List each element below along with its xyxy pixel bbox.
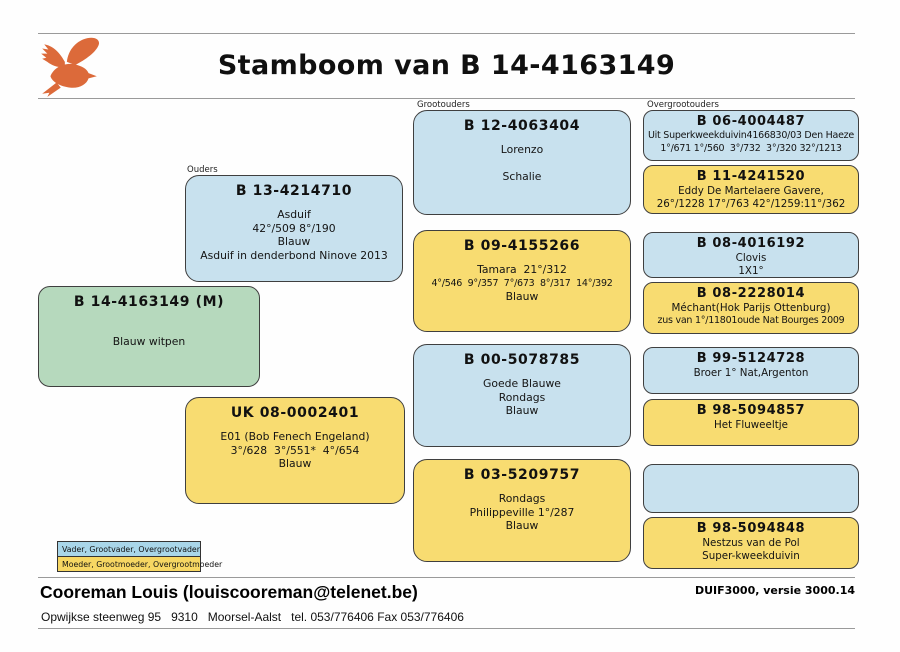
pedigree-box-great-grandmother-1: B 11-4241520 Eddy De Martelaere Gavere, … <box>643 165 859 214</box>
label-ouders: Ouders <box>187 165 218 175</box>
pedigree-line: Blauw <box>414 404 630 418</box>
pedigree-line: 3°/628 3°/551* 4°/654 <box>186 444 404 458</box>
pedigree-box-grandfather-maternal: B 00-5078785 Goede Blauwe Rondags Blauw <box>413 344 631 447</box>
software-version: DUIF3000, versie 3000.14 <box>695 584 855 597</box>
pedigree-box-body: E01 (Bob Fenech Engeland) 3°/628 3°/551*… <box>186 430 404 471</box>
pedigree-line: 1°/671 1°/560 3°/732 3°/320 32°/1213 <box>644 143 858 156</box>
pedigree-box-body <box>644 468 858 480</box>
pedigree-box-great-grandfather-1: B 06-4004487 Uit Superkweekduivin4166830… <box>643 110 859 161</box>
pedigree-line: Uit Superkweekduivin4166830/03 Den Haeze <box>644 130 858 143</box>
pedigree-line: Het Fluweeltje <box>644 419 858 432</box>
pedigree-box-grandmother-maternal: B 03-5209757 Rondags Philippeville 1°/28… <box>413 459 631 562</box>
pedigree-line: Blauw <box>414 519 630 533</box>
owner-address: Opwijkse steenweg 95 9310 Moorsel-Aalst … <box>41 610 464 624</box>
pedigree-box-great-grandmother-3: B 98-5094857 Het Fluweeltje <box>643 399 859 446</box>
pedigree-box-body: Broer 1° Nat,Argenton <box>644 367 858 380</box>
pedigree-line: zus van 1°/11801oude Nat Bourges 2009 <box>644 315 858 328</box>
ring-number: B 14-4163149 (M) <box>39 294 259 310</box>
page-title: Stamboom van B 14-4163149 <box>38 50 855 81</box>
pedigree-line: Blauw <box>186 457 404 471</box>
pedigree-line <box>644 468 858 480</box>
pedigree-box-body: Blauw witpen <box>39 322 259 349</box>
pedigree-box-grandmother-paternal: B 09-4155266 Tamara 21°/312 4°/546 9°/35… <box>413 230 631 332</box>
ring-number: B 08-4016192 <box>644 236 858 251</box>
pedigree-line: 4°/546 9°/357 7°/673 8°/317 14°/392 <box>414 277 630 291</box>
pedigree-line: Clovis <box>644 252 858 265</box>
pedigree-box-body: Lorenzo Schalie <box>414 143 630 183</box>
pedigree-box-great-grandfather-2: B 08-4016192 Clovis 1X1° <box>643 232 859 278</box>
pedigree-line: 26°/1228 17°/763 42°/1259:11°/362 <box>644 198 858 211</box>
pedigree-line: Blauw witpen <box>39 335 259 349</box>
pedigree-box-body: Nestzus van de Pol Super-kweekduivin <box>644 537 858 562</box>
pedigree-line: Lorenzo <box>414 143 630 157</box>
ring-number: B 06-4004487 <box>644 114 858 129</box>
header-bottom-rule <box>38 98 855 99</box>
legend-male-row: Vader, Grootvader, Overgrootvader <box>58 542 200 557</box>
ring-number: B 13-4214710 <box>186 183 402 199</box>
pedigree-line: Schalie <box>414 170 630 184</box>
header-top-rule <box>38 33 855 34</box>
pedigree-line: 1X1° <box>644 265 858 278</box>
pedigree-line: Blauw <box>414 290 630 304</box>
pedigree-page: Stamboom van B 14-4163149 Ouders Grootou… <box>0 0 900 652</box>
label-grootouders: Grootouders <box>417 100 470 110</box>
pedigree-line: Rondags <box>414 492 630 506</box>
pedigree-box-body: Clovis 1X1° <box>644 252 858 277</box>
owner-name: Cooreman Louis (louiscooreman@telenet.be… <box>40 582 418 603</box>
pedigree-line: Broer 1° Nat,Argenton <box>644 367 858 380</box>
ring-number: B 08-2228014 <box>644 286 858 301</box>
pedigree-box-body: Goede Blauwe Rondags Blauw <box>414 377 630 418</box>
ring-number: B 98-5094848 <box>644 521 858 536</box>
pedigree-box-body: Rondags Philippeville 1°/287 Blauw <box>414 492 630 533</box>
pedigree-line: Méchant(Hok Parijs Ottenburg) <box>644 302 858 315</box>
pedigree-line: Super-kweekduivin <box>644 550 858 563</box>
pedigree-line: 42°/509 8°/190 <box>186 222 402 236</box>
label-overgrootouders: Overgrootouders <box>647 100 719 110</box>
pedigree-line: Eddy De Martelaere Gavere, <box>644 185 858 198</box>
pedigree-box-body: Het Fluweeltje <box>644 419 858 432</box>
ring-number: B 99-5124728 <box>644 351 858 366</box>
ring-number: B 11-4241520 <box>644 169 858 184</box>
pedigree-line: Blauw <box>186 235 402 249</box>
pedigree-box-body: Asduif 42°/509 8°/190 Blauw Asduif in de… <box>186 208 402 262</box>
pedigree-box-grandfather-paternal: B 12-4063404 Lorenzo Schalie <box>413 110 631 215</box>
pedigree-box-body: Uit Superkweekduivin4166830/03 Den Haeze… <box>644 130 858 155</box>
pedigree-line: Goede Blauwe <box>414 377 630 391</box>
pedigree-box-father: B 13-4214710 Asduif 42°/509 8°/190 Blauw… <box>185 175 403 282</box>
legend-female-row: Moeder, Grootmoeder, Overgrootmoeder <box>58 557 200 571</box>
pedigree-box-great-grandmother-2: B 08-2228014 Méchant(Hok Parijs Ottenbur… <box>643 282 859 334</box>
pedigree-line: Asduif in denderbond Ninove 2013 <box>186 249 402 263</box>
footer-bottom-rule <box>38 628 855 629</box>
pedigree-line: Philippeville 1°/287 <box>414 506 630 520</box>
ring-number: B 12-4063404 <box>414 118 630 134</box>
pedigree-line: Tamara 21°/312 <box>414 263 630 277</box>
ring-number: B 09-4155266 <box>414 238 630 254</box>
pedigree-box-great-grandfather-4 <box>643 464 859 513</box>
pedigree-line: Asduif <box>186 208 402 222</box>
pedigree-box-body: Tamara 21°/312 4°/546 9°/357 7°/673 8°/3… <box>414 263 630 304</box>
ring-number: B 98-5094857 <box>644 403 858 418</box>
pedigree-box-great-grandmother-4: B 98-5094848 Nestzus van de Pol Super-kw… <box>643 517 859 569</box>
color-legend: Vader, Grootvader, Overgrootvader Moeder… <box>57 541 201 572</box>
pedigree-line <box>414 157 630 170</box>
pedigree-box-subject: B 14-4163149 (M) Blauw witpen <box>38 286 260 387</box>
pedigree-line: Rondags <box>414 391 630 405</box>
pedigree-line: E01 (Bob Fenech Engeland) <box>186 430 404 444</box>
pedigree-line: Nestzus van de Pol <box>644 537 858 550</box>
pedigree-box-great-grandfather-3: B 99-5124728 Broer 1° Nat,Argenton <box>643 347 859 394</box>
pedigree-box-body: Méchant(Hok Parijs Ottenburg) zus van 1°… <box>644 302 858 327</box>
ring-number: B 00-5078785 <box>414 352 630 368</box>
ring-number: B 03-5209757 <box>414 467 630 483</box>
footer-top-rule <box>38 577 855 578</box>
ring-number: UK 08-0002401 <box>186 405 404 421</box>
pedigree-box-mother: UK 08-0002401 E01 (Bob Fenech Engeland) … <box>185 397 405 504</box>
pedigree-line <box>39 322 259 335</box>
pedigree-box-body: Eddy De Martelaere Gavere, 26°/1228 17°/… <box>644 185 858 210</box>
